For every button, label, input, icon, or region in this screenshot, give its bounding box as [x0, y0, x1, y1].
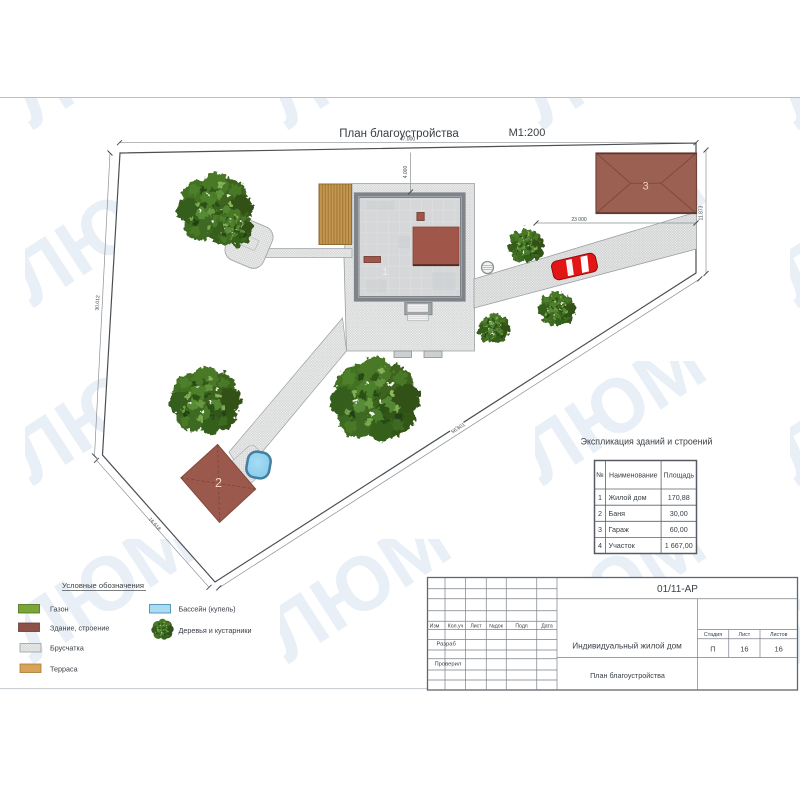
- svg-text:16: 16: [775, 645, 783, 654]
- svg-text:16: 16: [740, 645, 748, 654]
- svg-text:Стадия: Стадия: [704, 632, 722, 638]
- svg-text:Проверил: Проверил: [435, 662, 462, 668]
- svg-text:3: 3: [598, 525, 602, 534]
- svg-text:4.000: 4.000: [403, 166, 409, 179]
- svg-text:23 000: 23 000: [571, 217, 587, 223]
- svg-text:Баня: Баня: [609, 509, 626, 518]
- svg-text:Терраса: Терраса: [50, 665, 78, 674]
- svg-text:Подп: Подп: [515, 624, 528, 630]
- svg-text:170,88: 170,88: [668, 493, 690, 502]
- svg-text:М1:200: М1:200: [509, 127, 546, 139]
- svg-text:1 667,00: 1 667,00: [665, 541, 693, 550]
- svg-text:Экспликация зданий и строений: Экспликация зданий и строений: [581, 437, 713, 447]
- svg-text:Наименование: Наименование: [609, 473, 658, 480]
- svg-text:Лист: Лист: [470, 624, 482, 630]
- svg-text:Дата: Дата: [541, 624, 553, 630]
- svg-text:11.873: 11.873: [699, 205, 705, 220]
- svg-text:Жилой дом: Жилой дом: [609, 493, 647, 502]
- svg-text:Участок: Участок: [609, 541, 636, 550]
- svg-text:Здание, строение: Здание, строение: [50, 624, 109, 633]
- svg-text:1: 1: [598, 493, 602, 502]
- svg-text:Лист: Лист: [739, 632, 751, 638]
- svg-text:Деревья и кустарники: Деревья и кустарники: [179, 626, 252, 635]
- svg-text:Кол.уч: Кол.уч: [448, 624, 464, 630]
- svg-text:Условные обозначения: Условные обозначения: [62, 581, 144, 590]
- svg-text:П: П: [710, 645, 715, 654]
- svg-text:01/11-АР: 01/11-АР: [657, 584, 698, 595]
- svg-text:Гараж: Гараж: [609, 525, 629, 534]
- svg-text:4: 4: [598, 541, 602, 550]
- svg-text:Газон: Газон: [50, 605, 69, 614]
- svg-text:План благоустройства: План благоустройства: [339, 128, 459, 140]
- svg-text:План благоустройства: План благоустройства: [590, 671, 665, 680]
- svg-text:2: 2: [598, 509, 602, 518]
- svg-text:Индивидуальный жилой дом: Индивидуальный жилой дом: [572, 642, 682, 651]
- svg-text:60,00: 60,00: [670, 525, 688, 534]
- svg-text:Площадь: Площадь: [664, 473, 695, 480]
- svg-text:№: №: [596, 472, 604, 479]
- svg-text:3: 3: [642, 181, 648, 193]
- svg-text:30.012: 30.012: [95, 295, 102, 311]
- svg-text:Изм: Изм: [430, 624, 440, 630]
- svg-text:30,00: 30,00: [670, 509, 688, 518]
- svg-text:Листов: Листов: [770, 632, 788, 638]
- svg-text:Бассейн (купель): Бассейн (купель): [179, 605, 236, 614]
- svg-text:1: 1: [382, 267, 388, 278]
- svg-text:Брусчатка: Брусчатка: [50, 644, 84, 653]
- svg-text:2: 2: [215, 476, 222, 490]
- svg-text:№док: №док: [489, 624, 503, 630]
- svg-text:Разраб: Разраб: [437, 642, 457, 648]
